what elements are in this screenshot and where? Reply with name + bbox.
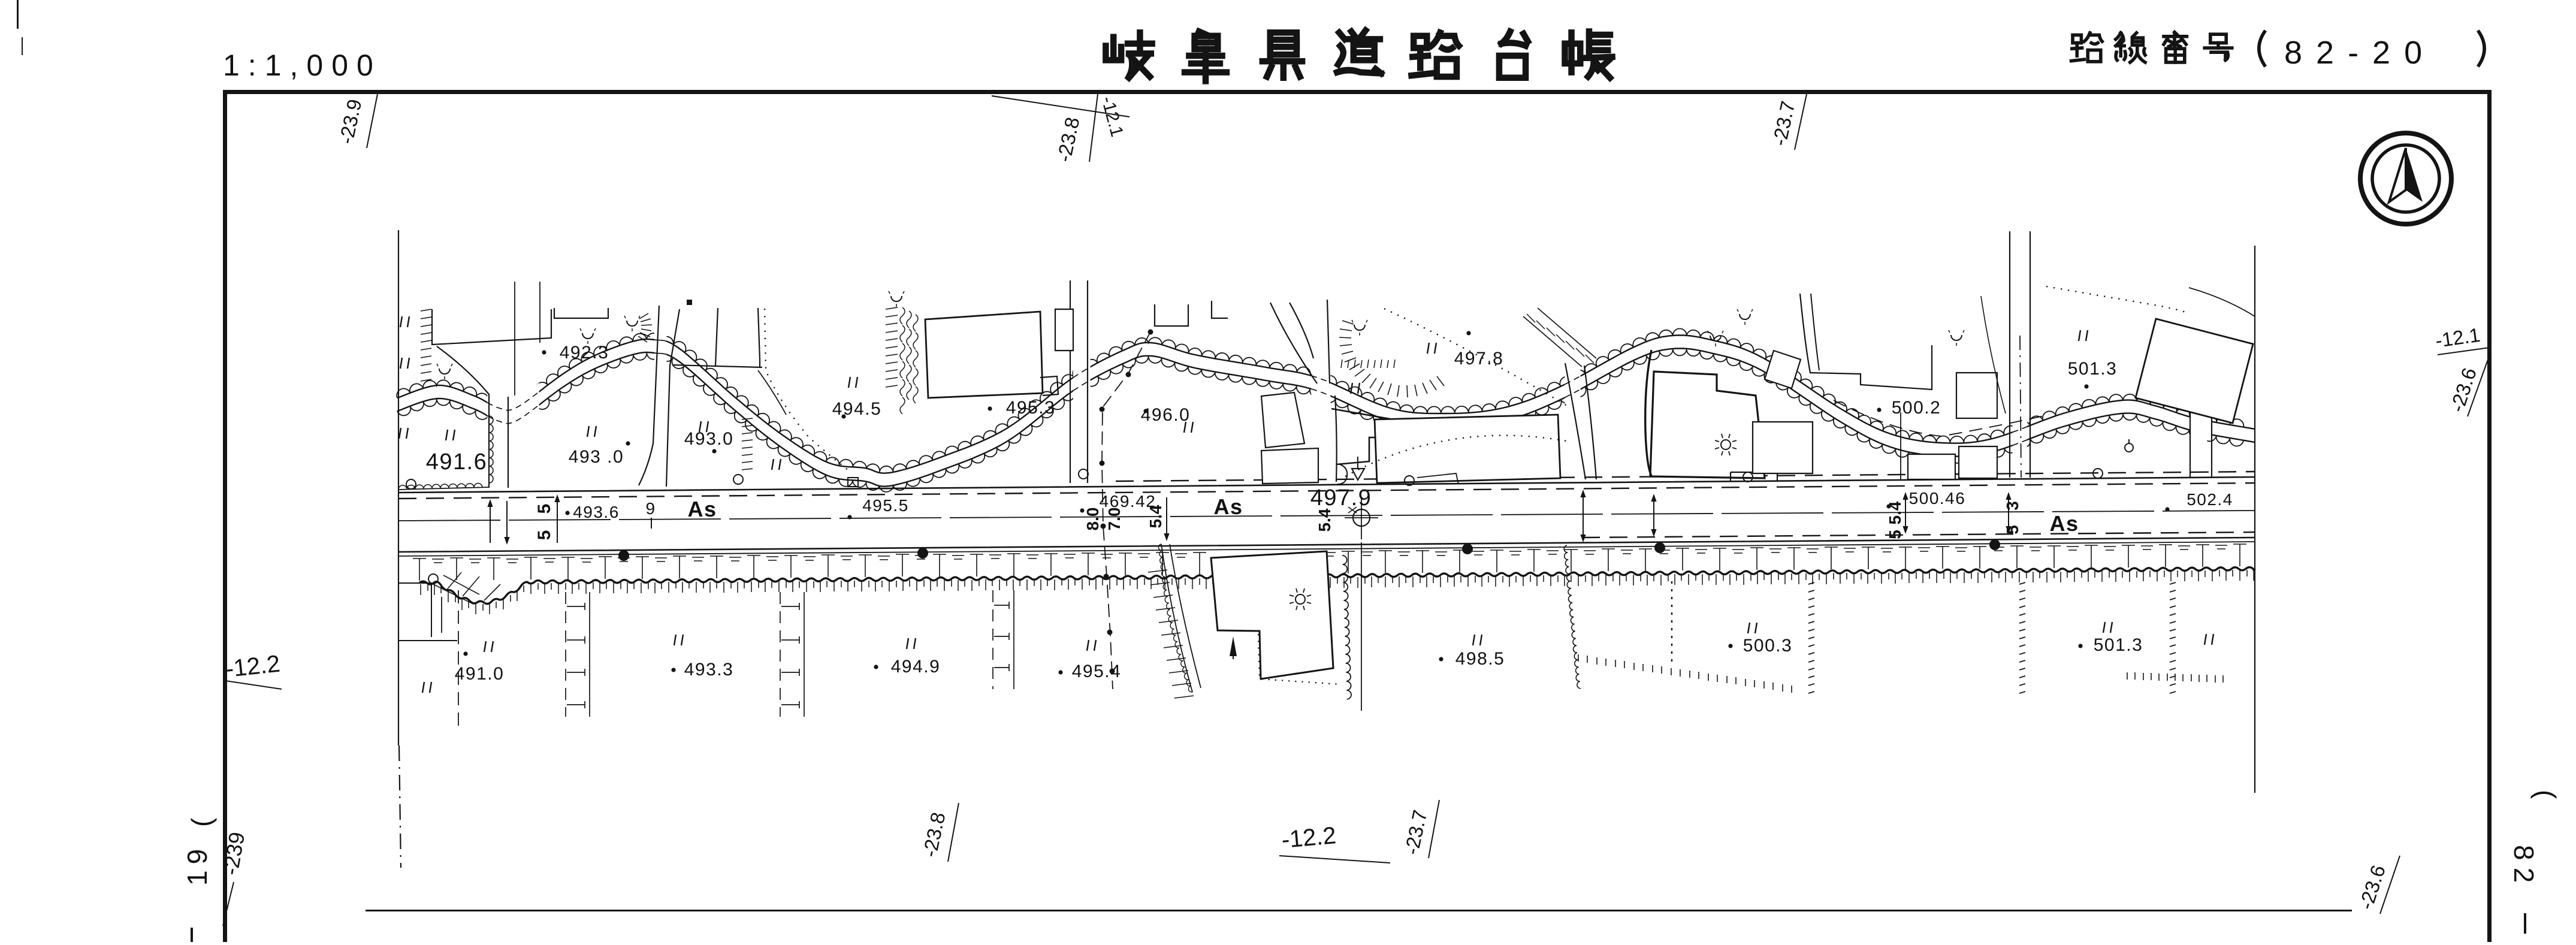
- svg-text:494.9: 494.9: [891, 657, 941, 677]
- svg-text:(: (: [2530, 790, 2562, 799]
- svg-text:495.3: 495.3: [1006, 398, 1056, 418]
- svg-text:19: 19: [182, 843, 213, 886]
- svg-text:497.8: 497.8: [1454, 349, 1504, 369]
- svg-text:494.5: 494.5: [832, 399, 882, 419]
- svg-text:5.4: 5.4: [1315, 508, 1334, 532]
- svg-text:501.3: 501.3: [2068, 359, 2118, 379]
- svg-text:493.3: 493.3: [684, 660, 734, 680]
- svg-text:493 .0: 493 .0: [569, 447, 624, 467]
- svg-text:As: As: [2049, 511, 2079, 536]
- svg-text:5.4: 5.4: [1146, 505, 1165, 528]
- svg-text:5: 5: [534, 504, 554, 514]
- svg-text:5: 5: [1886, 530, 1904, 539]
- svg-text:493.0: 493.0: [684, 429, 734, 449]
- svg-text:495.4: 495.4: [1072, 662, 1122, 681]
- svg-text:5: 5: [534, 530, 554, 541]
- svg-text:500.46: 500.46: [1909, 489, 1966, 508]
- svg-text:-12.2: -12.2: [1281, 822, 1337, 853]
- svg-text:8.0: 8.0: [1083, 508, 1102, 531]
- svg-text:501.3: 501.3: [2094, 635, 2143, 655]
- svg-text:5.4: 5.4: [1886, 501, 1904, 524]
- svg-text:82-20: 82-20: [2284, 35, 2436, 71]
- svg-text:1:1,000: 1:1,000: [223, 49, 382, 82]
- svg-text:497.9: 497.9: [1310, 485, 1372, 511]
- svg-text:498.5: 498.5: [1455, 649, 1505, 669]
- svg-text:495.5: 495.5: [862, 496, 909, 515]
- svg-text:491.6: 491.6: [426, 449, 488, 475]
- svg-text:As: As: [1213, 494, 1243, 519]
- svg-text:7.0: 7.0: [1105, 508, 1124, 531]
- svg-text:492.3: 492.3: [560, 343, 609, 363]
- svg-text:496.0: 496.0: [1141, 405, 1191, 425]
- svg-text:9: 9: [645, 499, 656, 518]
- svg-text:3: 3: [2003, 501, 2022, 511]
- svg-text:(: (: [186, 817, 217, 827]
- svg-text:500.2: 500.2: [1892, 398, 1941, 418]
- svg-text:82: 82: [2508, 845, 2539, 890]
- svg-text:491.0: 491.0: [455, 664, 505, 684]
- svg-text:500.3: 500.3: [1743, 636, 1793, 656]
- svg-text:493.6: 493.6: [573, 503, 620, 521]
- svg-text:502.4: 502.4: [2187, 490, 2233, 509]
- svg-text:As: As: [687, 497, 717, 521]
